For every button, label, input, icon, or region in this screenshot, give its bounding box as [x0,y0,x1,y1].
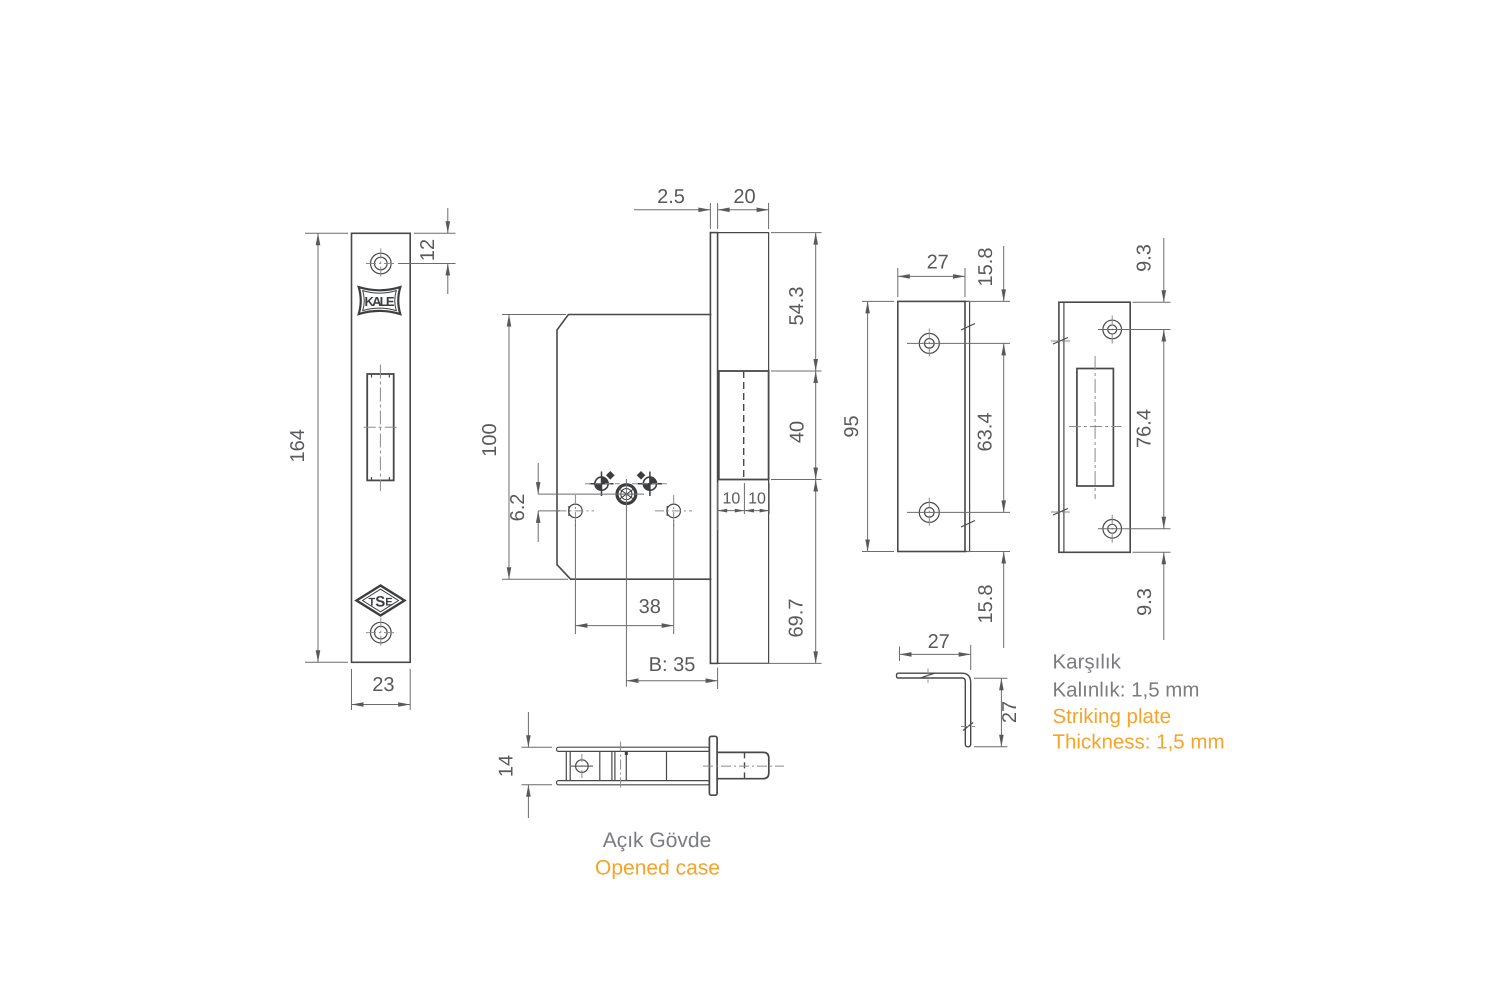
svg-text:Açık Gövde: Açık Gövde [603,829,712,852]
svg-text:10: 10 [748,491,766,508]
svg-text:23: 23 [372,674,394,696]
svg-text:14: 14 [496,755,518,777]
svg-text:63.4: 63.4 [975,413,997,452]
svg-text:95: 95 [841,415,863,437]
svg-text:27: 27 [927,252,949,274]
svg-text:Kalınlık: 1,5 mm: Kalınlık: 1,5 mm [1053,679,1200,702]
svg-text:40: 40 [787,421,809,443]
svg-text:6.2: 6.2 [507,494,529,522]
svg-text:69.7: 69.7 [786,599,808,638]
svg-text:Striking plate: Striking plate [1053,705,1172,728]
svg-text:15.8: 15.8 [975,585,997,624]
svg-text:B: 35: B: 35 [649,654,696,676]
svg-text:76.4: 76.4 [1134,409,1156,448]
svg-text:9.3: 9.3 [1134,244,1156,272]
svg-text:Opened case: Opened case [595,857,720,880]
svg-text:Thickness: 1,5 mm: Thickness: 1,5 mm [1053,731,1225,754]
svg-text:38: 38 [639,596,661,618]
svg-text:10: 10 [723,491,741,508]
svg-text:27: 27 [928,631,950,653]
svg-text:27: 27 [999,701,1021,723]
svg-text:TSE: TSE [368,594,392,611]
svg-text:9.3: 9.3 [1134,588,1156,616]
svg-text:KALE: KALE [365,294,395,309]
svg-text:54.3: 54.3 [786,287,808,326]
svg-text:20: 20 [733,186,755,208]
svg-text:15.8: 15.8 [975,248,997,287]
svg-text:Karşılık: Karşılık [1053,651,1122,674]
svg-text:12: 12 [417,239,439,261]
svg-text:100: 100 [479,423,501,456]
svg-text:164: 164 [287,429,309,462]
svg-text:2.5: 2.5 [657,186,685,208]
